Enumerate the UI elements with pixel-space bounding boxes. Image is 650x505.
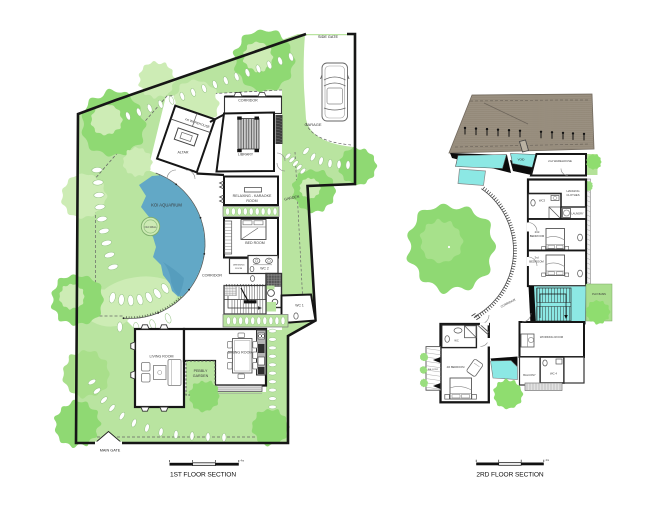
svg-text:DINING ROOM: DINING ROOM xyxy=(228,351,253,355)
svg-text:BEDROOM: BEDROOM xyxy=(530,234,545,238)
svg-text:DRESSING: DRESSING xyxy=(233,265,245,267)
svg-text:BED ROOM: BED ROOM xyxy=(245,241,265,245)
svg-text:1ST FLOOR SECTION: 1ST FLOOR SECTION xyxy=(170,472,236,479)
svg-text:BALCONY: BALCONY xyxy=(428,368,439,371)
svg-text:PLAY BASIN: PLAY BASIN xyxy=(592,293,606,296)
svg-text:ROOM: ROOM xyxy=(246,199,257,203)
svg-text:WC 2: WC 2 xyxy=(260,267,269,271)
svg-text:SIDE GATE: SIDE GATE xyxy=(318,35,338,39)
svg-text:KOI AQUARIUM: KOI AQUARIUM xyxy=(151,203,182,208)
svg-text:2RD FLOOR SECTION: 2RD FLOOR SECTION xyxy=(476,472,544,479)
svg-text:RELAXING - KARAOKE: RELAXING - KARAOKE xyxy=(233,194,272,198)
svg-text:PEBBLY: PEBBLY xyxy=(194,369,208,373)
svg-text:4m: 4m xyxy=(546,458,550,462)
svg-text:WC: WC xyxy=(454,339,458,343)
svg-text:ALTAR: ALTAR xyxy=(177,151,188,155)
svg-text:WC 4: WC 4 xyxy=(550,372,557,376)
svg-text:WC 1: WC 1 xyxy=(295,304,304,308)
svg-text:LIVING ROOM: LIVING ROOM xyxy=(150,355,174,359)
svg-text:WC3: WC3 xyxy=(539,199,546,203)
svg-text:CORRIDOR: CORRIDOR xyxy=(238,99,258,103)
svg-text:LAUNDRY: LAUNDRY xyxy=(571,212,584,216)
svg-text:4m: 4m xyxy=(241,459,245,463)
svg-text:GARAGE: GARAGE xyxy=(304,122,321,127)
svg-text:WORKING ROOM: WORKING ROOM xyxy=(540,335,564,339)
svg-text:ROOM: ROOM xyxy=(235,268,242,270)
svg-text:4th BEDROOM: 4th BEDROOM xyxy=(447,365,465,369)
svg-text:VOID: VOID xyxy=(518,158,525,162)
svg-text:LIBRARY: LIBRARY xyxy=(238,153,254,157)
svg-text:2nd WAREHOUSE: 2nd WAREHOUSE xyxy=(548,159,572,163)
svg-text:GARDEN: GARDEN xyxy=(193,374,209,378)
svg-text:MAIN GATE: MAIN GATE xyxy=(100,449,121,453)
svg-text:BEDROOM: BEDROOM xyxy=(529,260,544,264)
svg-text:CORRIDOR: CORRIDOR xyxy=(202,274,222,278)
svg-text:CLOTHES: CLOTHES xyxy=(566,193,579,197)
svg-text:BALCONY: BALCONY xyxy=(523,373,536,377)
svg-text:OLD WELL: OLD WELL xyxy=(144,226,157,229)
